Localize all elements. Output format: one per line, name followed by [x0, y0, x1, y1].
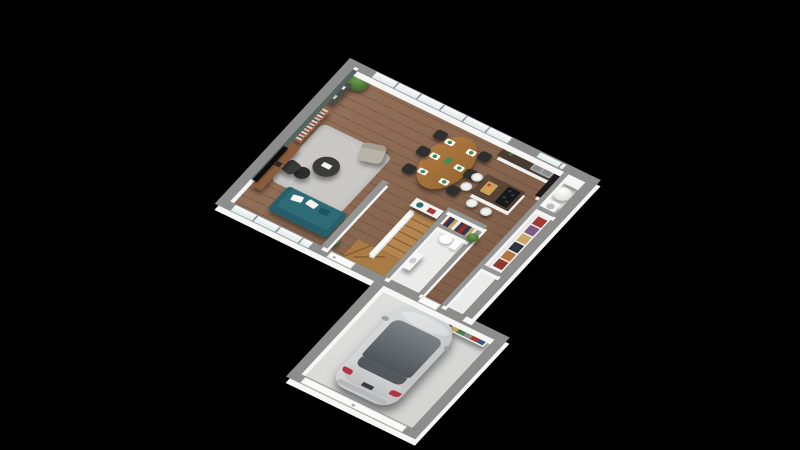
cutting-board [479, 181, 498, 196]
ground-floor-plan [121, 58, 654, 450]
sofa-pillow [305, 199, 319, 209]
burner [510, 193, 515, 197]
winder-step-edge [354, 256, 385, 258]
sofa-pillow-teal [317, 207, 331, 216]
table-lamp [415, 201, 425, 208]
basin [408, 257, 418, 265]
red-books [426, 207, 436, 214]
food-item [486, 188, 491, 192]
floor-plan-scene [0, 0, 800, 450]
sofa-pillow [290, 194, 304, 203]
door-handle [332, 256, 336, 259]
garage-door-handle [351, 403, 356, 407]
burner [502, 195, 507, 199]
food-item [487, 183, 492, 187]
burner [504, 200, 509, 204]
